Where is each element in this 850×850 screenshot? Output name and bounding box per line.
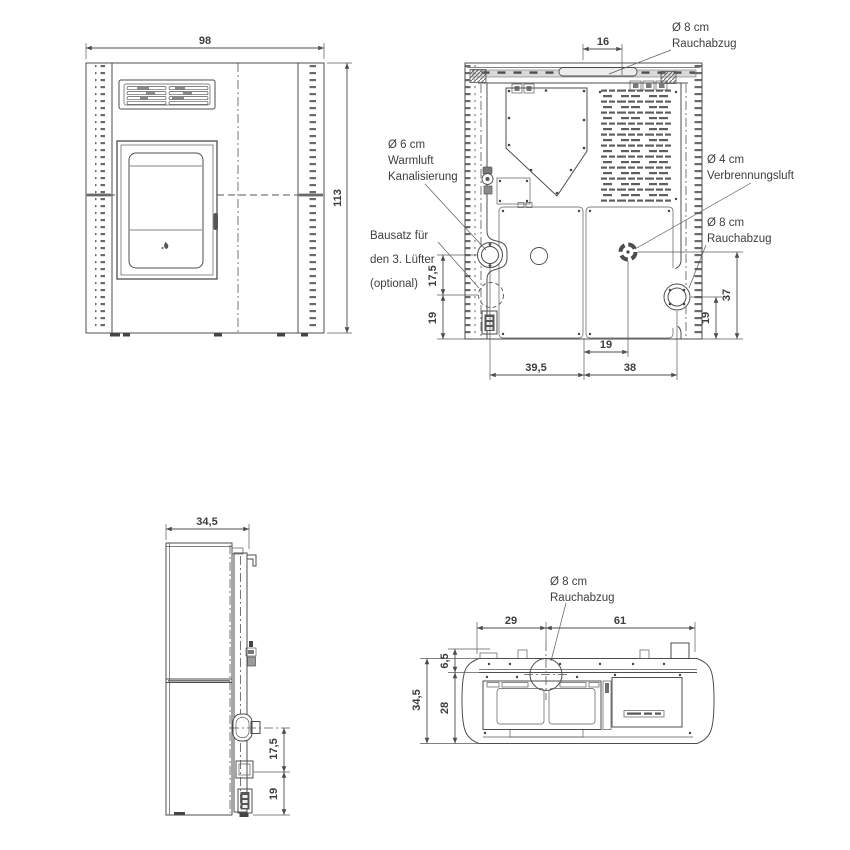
label-warmair-3: Kanalisierung [388, 171, 458, 183]
front-body [86, 63, 324, 337]
front-door [117, 141, 218, 279]
label-smoke-rear-1: Ø 8 cm [707, 217, 744, 229]
rear-vent-panels [499, 89, 683, 338]
label-warmair-2: Warmluft [388, 155, 434, 167]
dim-top-depth: 34,5 [411, 689, 423, 710]
side-dimensions: 34,5 17,5 19 [166, 516, 290, 815]
label-fankit-1: Bausatz für [370, 230, 428, 242]
dim-rear-left-lower: 19 [427, 312, 439, 324]
dim-top-back-right: 61 [614, 615, 626, 627]
wall-hook [247, 555, 256, 566]
dim-rear-right-lower: 19 [700, 312, 712, 324]
dim-rear-right-upper: 37 [721, 289, 733, 301]
stove-technical-drawing: 98 113 [0, 0, 850, 850]
top-view: 29 61 6,5 28 34,5 Ø 8 cm Rauchabzug [411, 576, 714, 744]
label-top-smoke-1: Ø 8 cm [550, 576, 587, 588]
side-view: 34,5 17,5 19 [166, 516, 290, 817]
label-combustion-1: Ø 4 cm [707, 154, 744, 166]
top-smoke-outlet [524, 642, 568, 700]
dim-top-back-left: 29 [505, 615, 517, 627]
dim-front-height: 113 [332, 189, 344, 207]
dim-top-body-depth: 28 [439, 702, 451, 714]
dim-side-outlet-offset: 17,5 [268, 738, 280, 759]
rear-smoke-port [664, 284, 690, 310]
dim-rear-bottom-center: 19 [600, 339, 612, 351]
flame-logo-icon [162, 242, 169, 249]
rear-callouts: Ø 8 cm Rauchabzug Ø 6 cm Warmluft Kanali… [370, 22, 795, 290]
label-smoke-rear-2: Rauchabzug [707, 233, 772, 245]
dim-rear-left-upper: 17,5 [427, 265, 439, 286]
rear-power-socket [482, 311, 497, 334]
side-smoke-outlet [230, 714, 290, 741]
side-combustion-inlet [236, 761, 253, 778]
rear-warm-air-port [478, 243, 503, 268]
label-combustion-2: Verbrennungsluft [707, 170, 795, 182]
dim-side-depth: 34,5 [196, 516, 217, 528]
front-air-grille [119, 80, 215, 109]
rear-door-latch [482, 167, 493, 194]
side-body [166, 543, 232, 816]
label-smoke-top-2: Rauchabzug [672, 38, 737, 50]
dim-rear-top-offset: 16 [597, 36, 609, 48]
top-body [462, 643, 714, 744]
dim-rear-bottom-right: 38 [624, 362, 636, 374]
rear-view: 16 17,5 19 37 19 19 39,5 [370, 22, 795, 380]
dim-top-rim: 6,5 [439, 653, 451, 668]
label-smoke-top-1: Ø 8 cm [672, 22, 709, 34]
label-fankit-2: den 3. Lüfter [370, 254, 435, 266]
rear-combustion-port [618, 242, 638, 262]
door-handle [214, 213, 219, 230]
rear-hopper-panel [497, 88, 587, 208]
dim-side-inlet-offset: 19 [268, 788, 280, 800]
top-callouts: Ø 8 cm Rauchabzug [550, 576, 615, 661]
dim-front-width: 98 [199, 35, 211, 47]
label-top-smoke-2: Rauchabzug [550, 592, 615, 604]
rear-optional-fan-port [479, 283, 504, 308]
front-view: 98 113 [86, 35, 352, 337]
label-fankit-3: (optional) [370, 278, 418, 290]
top-grille-panels [483, 678, 682, 730]
label-warmair-1: Ø 6 cm [388, 139, 425, 151]
dim-rear-bottom-left: 39,5 [525, 362, 546, 374]
drawing-svg: 98 113 [0, 0, 850, 850]
